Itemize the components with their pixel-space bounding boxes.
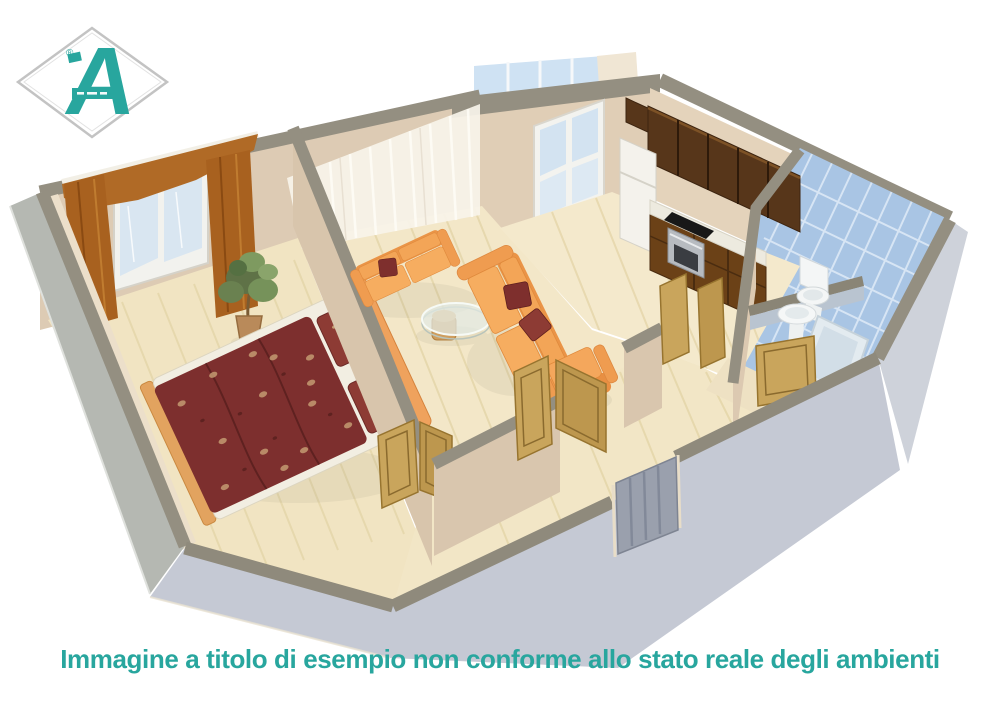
coffee-table [422, 303, 490, 340]
disclaimer-caption: Immagine a titolo di esempio non conform… [0, 644, 1000, 675]
logo-letter: A [59, 28, 143, 134]
apartment-3d-render: A ® [0, 0, 1000, 707]
agency-logo: A ® [18, 28, 167, 137]
logo-registered-mark: ® [66, 48, 74, 59]
listing-example-image: A ® Immagine a titolo di esempio non con… [0, 0, 1000, 707]
